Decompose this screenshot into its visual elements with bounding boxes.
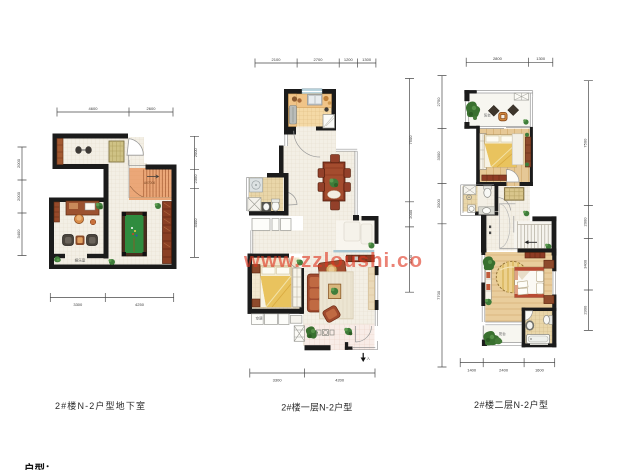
svg-text:7500: 7500 (582, 138, 587, 148)
svg-text:7700: 7700 (436, 290, 441, 300)
svg-text:www.zzloushi.co: www.zzloushi.co (243, 249, 422, 272)
svg-text:2000: 2000 (408, 209, 413, 219)
svg-text:2350: 2350 (193, 174, 198, 184)
svg-text:1300: 1300 (362, 57, 372, 62)
svg-text:阳台: 阳台 (499, 331, 506, 336)
svg-text:1400: 1400 (467, 367, 477, 372)
svg-text:2100: 2100 (272, 57, 282, 62)
svg-text:阳台: 阳台 (484, 113, 491, 118)
svg-text:入: 入 (367, 356, 371, 361)
svg-text:1200: 1200 (344, 57, 354, 62)
svg-text:A07006: A07006 (144, 181, 155, 185)
svg-text:2#楼一层N-2户型: 2#楼一层N-2户型 (281, 402, 352, 413)
svg-text:2000: 2000 (193, 148, 198, 158)
svg-text:1600: 1600 (535, 367, 545, 372)
svg-text:2800: 2800 (493, 56, 503, 61)
svg-text:2000: 2000 (16, 191, 21, 201)
svg-text:3400: 3400 (582, 259, 587, 269)
svg-text:3400: 3400 (16, 229, 21, 239)
svg-text:4250: 4250 (135, 302, 145, 307)
svg-text:2000: 2000 (16, 158, 21, 168)
svg-text:4200: 4200 (335, 377, 345, 382)
svg-text:2#楼二层N-2户型: 2#楼二层N-2户型 (474, 399, 548, 410)
svg-text:2#楼N-2户型地下室: 2#楼N-2户型地下室 (55, 400, 145, 411)
svg-text:4400: 4400 (193, 218, 198, 228)
svg-text:户型：: 户型： (23, 462, 56, 470)
svg-text:3300: 3300 (73, 302, 83, 307)
svg-text:3300: 3300 (273, 377, 283, 382)
svg-text:2000: 2000 (436, 198, 441, 208)
svg-text:2400: 2400 (499, 367, 509, 372)
svg-text:4600: 4600 (89, 106, 99, 111)
svg-text:2300: 2300 (582, 305, 587, 315)
svg-text:7500: 7500 (408, 135, 413, 145)
svg-text:空调: 空调 (256, 316, 263, 321)
svg-text:娱乐室: 娱乐室 (75, 258, 86, 263)
svg-text:2000: 2000 (582, 217, 587, 227)
svg-text:1300: 1300 (536, 56, 546, 61)
svg-text:3300: 3300 (436, 151, 441, 161)
svg-text:2700: 2700 (314, 57, 324, 62)
svg-text:2600: 2600 (147, 106, 157, 111)
svg-text:2750: 2750 (436, 97, 441, 107)
